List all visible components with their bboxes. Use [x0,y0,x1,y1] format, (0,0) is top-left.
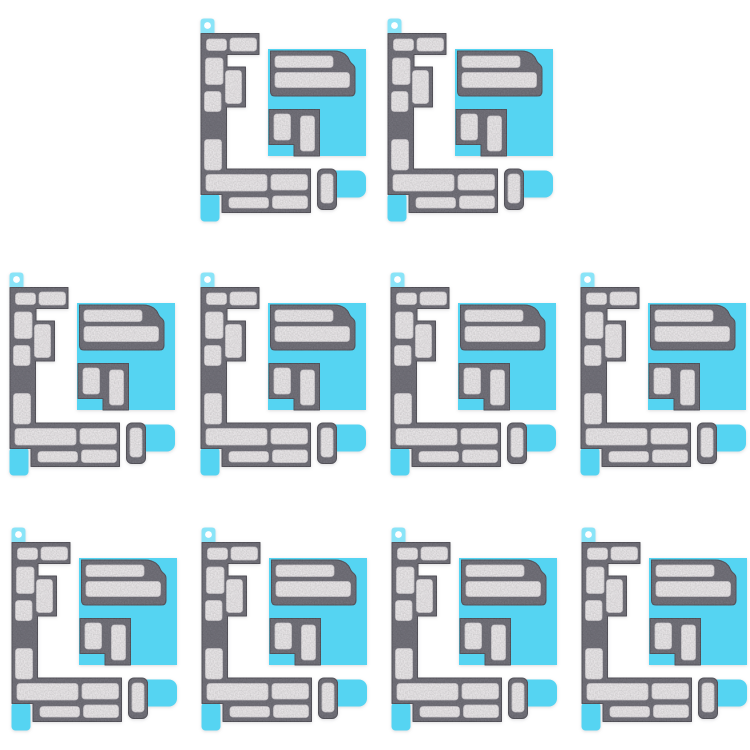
photo-stage [0,0,750,750]
product-photo-page: { "product": { "description": "Ten ident… [0,0,750,750]
sticker-unit [10,273,176,476]
sticker-unit [201,19,367,222]
sticker-sheet-canvas [0,0,750,750]
sticker-unit [201,273,367,476]
sticker-unit [392,528,558,731]
sticker-unit [581,273,747,476]
sticker-unit [582,528,748,731]
sticker-unit [391,273,557,476]
sticker-unit [388,19,554,222]
sticker-unit [12,528,178,731]
sticker-unit [202,528,368,731]
